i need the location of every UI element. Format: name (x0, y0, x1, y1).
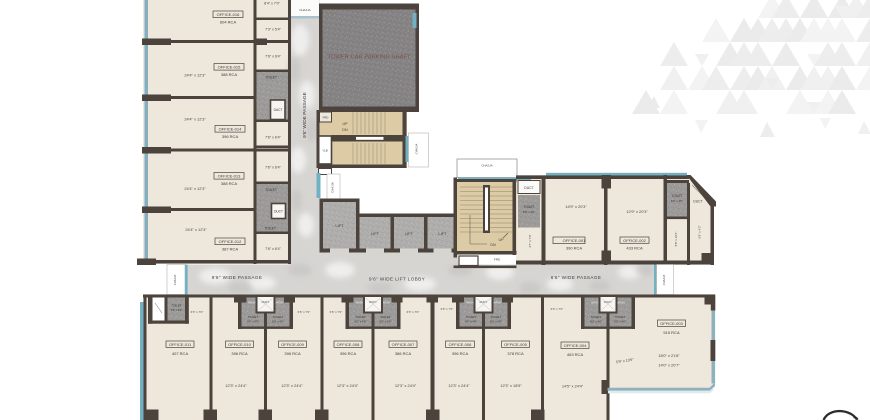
svg-text:6'6" WIDE PASSAGE: 6'6" WIDE PASSAGE (551, 275, 602, 280)
svg-text:390 RCA: 390 RCA (566, 246, 583, 251)
svg-text:OFFICE-015: OFFICE-015 (218, 65, 241, 70)
svg-text:WASH: WASH (591, 301, 599, 305)
svg-text:DN: DN (490, 243, 496, 247)
svg-text:396 RCA: 396 RCA (231, 351, 248, 356)
svg-text:TOILET: TOILET (264, 227, 276, 231)
svg-text:396 RCA: 396 RCA (340, 351, 357, 356)
svg-text:TOILET: TOILET (355, 315, 366, 319)
svg-text:18'0" x 21'8": 18'0" x 21'8" (658, 353, 680, 358)
svg-text:9'6" WIDE LIFT LOBBY: 9'6" WIDE LIFT LOBBY (369, 277, 425, 282)
svg-text:LIFT: LIFT (335, 223, 344, 228)
svg-text:7'3" x 5'4": 7'3" x 5'4" (265, 28, 281, 32)
svg-text:24'4" x 12'3": 24'4" x 12'3" (184, 73, 206, 78)
svg-text:OFFICE-012: OFFICE-012 (219, 239, 242, 244)
svg-text:WASH: WASH (383, 301, 391, 305)
svg-text:OFFICE-007: OFFICE-007 (392, 342, 415, 347)
svg-text:6'0" x 4'0": 6'0" x 4'0" (465, 320, 477, 324)
svg-text:TOILET: TOILET (615, 315, 626, 319)
svg-text:WASH: WASH (356, 301, 364, 305)
svg-text:6'6" x 7'0": 6'6" x 7'0" (330, 310, 343, 314)
svg-text:9'6" WIDE PASSAGE: 9'6" WIDE PASSAGE (212, 275, 263, 280)
svg-text:TOILET: TOILET (248, 315, 259, 319)
svg-text:6'0" x 4'0": 6'0" x 4'0" (247, 320, 259, 324)
svg-text:6'6" x 7'0": 6'6" x 7'0" (191, 310, 204, 314)
svg-text:7'6" x 6'4": 7'6" x 6'4" (265, 247, 281, 251)
svg-text:14'0" x 20'7": 14'0" x 20'7" (658, 363, 680, 368)
svg-text:OFFICE-014: OFFICE-014 (219, 127, 242, 132)
svg-text:CHAJJA: CHAJJA (415, 144, 419, 155)
svg-text:OFFICE-003: OFFICE-003 (660, 321, 683, 326)
svg-text:TOILET: TOILET (171, 304, 181, 308)
svg-text:12'3" x 24'4": 12'3" x 24'4" (225, 383, 247, 388)
svg-text:OFFICE-005: OFFICE-005 (504, 342, 527, 347)
svg-text:6'6" x 7'0": 6'6" x 7'0" (551, 307, 564, 311)
svg-text:6'0" x 4'0": 6'0" x 4'0" (171, 308, 182, 312)
svg-text:9'6" WIDE PASSAGE: 9'6" WIDE PASSAGE (302, 92, 308, 138)
svg-text:UP: UP (343, 122, 349, 126)
svg-text:388 RCA: 388 RCA (221, 181, 238, 186)
svg-text:TOILET: TOILET (523, 205, 534, 209)
svg-text:CHAJJA: CHAJJA (331, 182, 335, 193)
svg-text:24'4" x 12'3": 24'4" x 12'3" (184, 186, 206, 191)
svg-text:6'0" x 4'0": 6'0" x 4'0" (380, 320, 392, 324)
svg-text:OFFICE-011: OFFICE-011 (169, 342, 192, 347)
svg-text:CHAJJA: CHAJJA (299, 8, 310, 12)
svg-text:407 RCA: 407 RCA (172, 351, 189, 356)
svg-text:OFFICE-004: OFFICE-004 (564, 343, 587, 348)
svg-text:6'6" x 7'0": 6'6" x 7'0" (298, 310, 311, 314)
svg-text:388 RCA: 388 RCA (221, 72, 238, 77)
svg-text:CHAJJA: CHAJJA (173, 275, 177, 286)
svg-text:7'6" x 6'4": 7'6" x 6'4" (265, 166, 281, 170)
svg-text:6'0" x 4'0": 6'0" x 4'0" (272, 320, 284, 324)
svg-text:OFFICE-016: OFFICE-016 (217, 12, 240, 17)
svg-text:387 RCA: 387 RCA (222, 247, 239, 252)
svg-text:TOILET: TOILET (380, 315, 391, 319)
svg-text:DN: DN (342, 128, 348, 132)
svg-text:7'6" x 6'4": 7'6" x 6'4" (265, 55, 281, 59)
svg-text:5'8" x 19'1": 5'8" x 19'1" (674, 232, 678, 247)
svg-text:604 RCA: 604 RCA (220, 19, 237, 24)
svg-text:12'3" x 18'5": 12'3" x 18'5" (500, 383, 522, 388)
svg-text:WASH: WASH (248, 301, 256, 305)
svg-text:12'3" x 24'4": 12'3" x 24'4" (337, 383, 359, 388)
svg-text:6'0" x 4'0": 6'0" x 4'0" (355, 320, 367, 324)
svg-text:378 RCA: 378 RCA (507, 351, 524, 356)
svg-text:396 RCA: 396 RCA (284, 351, 301, 356)
svg-text:OFFICE-009: OFFICE-009 (281, 342, 304, 347)
svg-text:8'4" x 7'0": 8'4" x 7'0" (264, 2, 280, 6)
svg-text:LIFT: LIFT (405, 231, 414, 236)
svg-text:TOILET: TOILET (273, 315, 284, 319)
svg-text:14'5" x 24'4": 14'5" x 24'4" (562, 384, 584, 389)
svg-text:24'4" x 12'3": 24'4" x 12'3" (184, 117, 206, 122)
svg-text:396 RCA: 396 RCA (452, 351, 469, 356)
svg-text:CHAJJA: CHAJJA (662, 275, 666, 286)
svg-text:TOILET: TOILET (591, 315, 602, 319)
svg-text:12'3" x 24'4": 12'3" x 24'4" (448, 383, 470, 388)
svg-text:DUCT: DUCT (274, 210, 283, 214)
svg-text:DUCT: DUCT (693, 200, 702, 204)
svg-text:12'9" x 20'3": 12'9" x 20'3" (626, 209, 648, 214)
svg-text:515 RCA: 515 RCA (663, 330, 680, 335)
svg-text:6'0" x 4'0": 6'0" x 4'0" (614, 320, 626, 324)
svg-text:433 RCA: 433 RCA (626, 246, 643, 251)
svg-text:OFFICE-010: OFFICE-010 (228, 342, 251, 347)
svg-text:463 RCA: 463 RCA (567, 352, 584, 357)
svg-text:6'6" x 7'0": 6'6" x 7'0" (441, 307, 454, 311)
svg-text:WASH: WASH (466, 301, 474, 305)
svg-text:FRD: FRD (323, 116, 329, 120)
svg-text:6'0" x 4'0": 6'0" x 4'0" (671, 199, 683, 203)
svg-text:396 RCA: 396 RCA (222, 134, 239, 139)
svg-text:TOILET: TOILET (466, 315, 477, 319)
svg-text:OFFICE-002: OFFICE-002 (623, 238, 646, 243)
svg-text:OFFICE-013: OFFICE-013 (218, 174, 241, 179)
svg-text:386 RCA: 386 RCA (395, 351, 412, 356)
svg-text:LIFT: LIFT (438, 231, 447, 236)
svg-text:LIFT: LIFT (371, 231, 380, 236)
svg-text:TOILET: TOILET (265, 188, 277, 192)
svg-text:6'0" x 4'0": 6'0" x 4'0" (490, 320, 502, 324)
svg-text:FRD: FRD (494, 258, 501, 262)
svg-text:6'0" x 4'0": 6'0" x 4'0" (523, 210, 535, 214)
svg-text:WASH: WASH (493, 301, 501, 305)
svg-text:12'3" x 24'4": 12'3" x 24'4" (281, 383, 303, 388)
svg-text:UP: UP (499, 238, 505, 242)
svg-text:DUCT: DUCT (524, 186, 533, 190)
svg-text:YLB: YLB (322, 149, 327, 153)
svg-text:14'9" x 20'3": 14'9" x 20'3" (565, 204, 587, 209)
svg-text:TOILET: TOILET (671, 194, 682, 198)
svg-text:12'3" x 24'4": 12'3" x 24'4" (395, 383, 417, 388)
svg-text:TOWER CAR PARKING SHAFT: TOWER CAR PARKING SHAFT (327, 55, 411, 61)
svg-text:OFFICE-006: OFFICE-006 (449, 342, 472, 347)
svg-text:WASH: WASH (617, 301, 625, 305)
svg-text:CHAJJA: CHAJJA (481, 164, 492, 168)
svg-text:DUCT: DUCT (274, 108, 283, 112)
svg-text:WASH: WASH (275, 301, 283, 305)
svg-text:7'6" x 6'4": 7'6" x 6'4" (265, 136, 281, 140)
svg-text:24'4" x 12'3": 24'4" x 12'3" (185, 227, 207, 232)
svg-text:OFFICE-001: OFFICE-001 (563, 238, 586, 243)
svg-text:TOILET: TOILET (491, 315, 502, 319)
svg-text:OFFICE-008: OFFICE-008 (337, 342, 360, 347)
svg-text:TOILET: TOILET (265, 76, 277, 80)
svg-text:6'0" x 4'0": 6'0" x 4'0" (590, 320, 602, 324)
svg-text:4'7" x 7'0": 4'7" x 7'0" (528, 234, 532, 247)
svg-text:6'6" x 7'0": 6'6" x 7'0" (407, 310, 420, 314)
svg-text:6'9" x 4'3": 6'9" x 4'3" (698, 225, 702, 238)
